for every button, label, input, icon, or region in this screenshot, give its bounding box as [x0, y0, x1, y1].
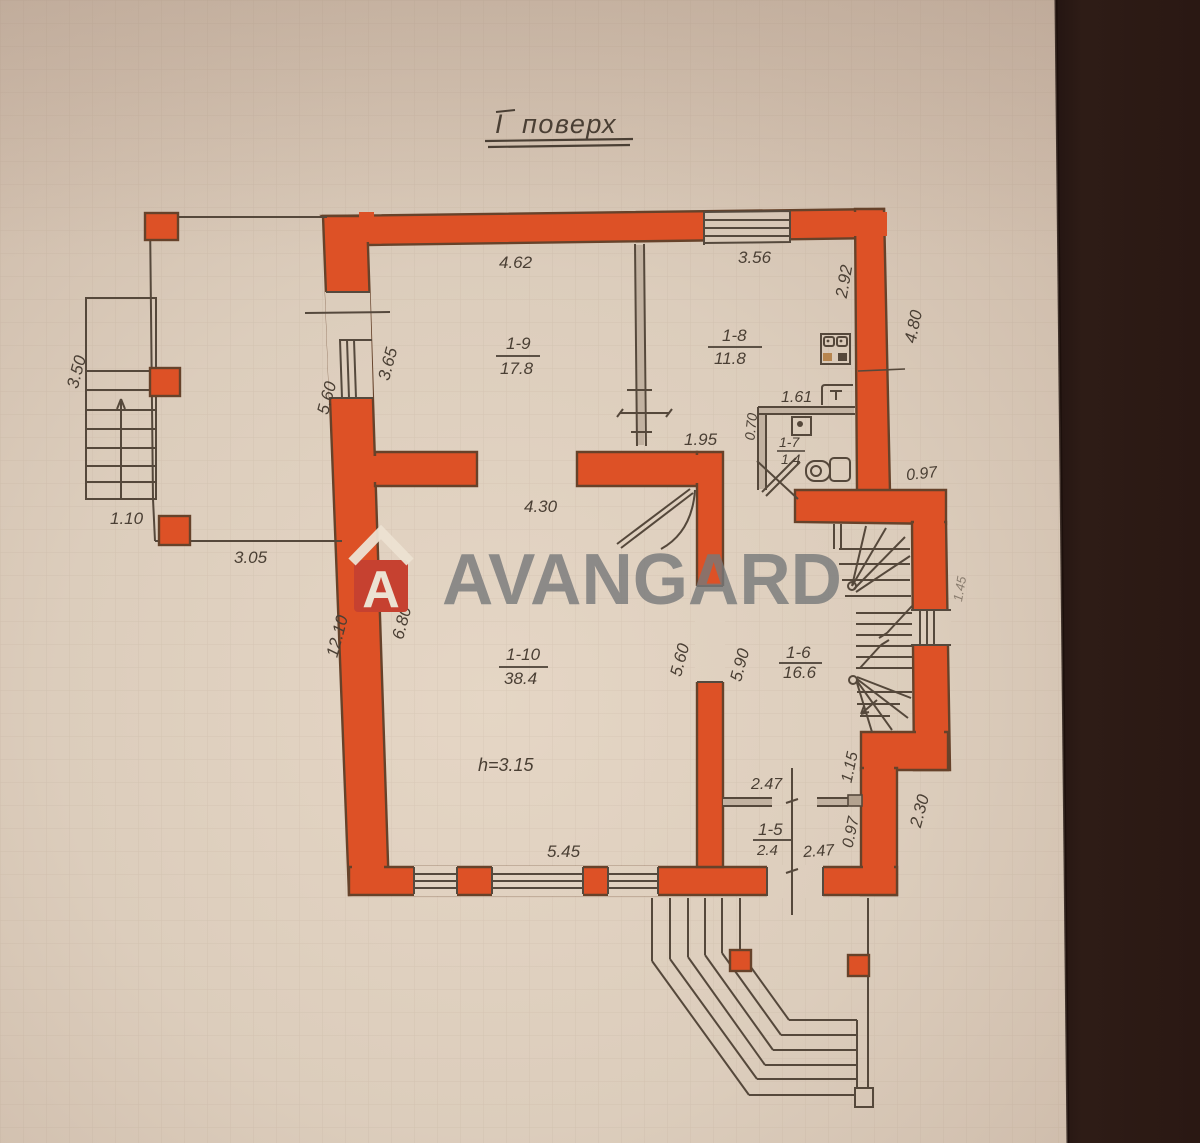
svg-text:4.30: 4.30 — [524, 497, 558, 516]
svg-text:4.62: 4.62 — [499, 253, 533, 272]
svg-text:1.95: 1.95 — [684, 430, 718, 449]
svg-text:A: A — [362, 561, 400, 619]
svg-text:1-7: 1-7 — [779, 434, 800, 450]
svg-text:AVANGARD: AVANGARD — [442, 540, 842, 620]
svg-text:17.8: 17.8 — [500, 359, 534, 378]
svg-text:3.56: 3.56 — [738, 248, 772, 267]
svg-text:0.70: 0.70 — [741, 412, 760, 441]
svg-text:1-10: 1-10 — [506, 645, 541, 664]
svg-text:1.61: 1.61 — [781, 389, 812, 406]
svg-text:38.4: 38.4 — [504, 669, 537, 688]
svg-text:h=3.15: h=3.15 — [478, 755, 535, 775]
svg-text:1-5: 1-5 — [758, 820, 783, 839]
svg-text:1-9: 1-9 — [506, 334, 531, 353]
svg-text:1-8: 1-8 — [722, 326, 747, 345]
svg-text:5.45: 5.45 — [547, 842, 581, 861]
svg-text:1.4: 1.4 — [781, 451, 801, 467]
svg-text:2.47: 2.47 — [750, 776, 783, 793]
svg-text:2.47: 2.47 — [802, 842, 836, 861]
svg-text:3.05: 3.05 — [234, 548, 268, 567]
svg-text:I поверх: I поверх — [495, 109, 617, 139]
svg-text:2.4: 2.4 — [756, 842, 778, 859]
svg-text:16.6: 16.6 — [783, 663, 817, 682]
svg-text:1.10: 1.10 — [110, 509, 144, 528]
svg-text:1-6: 1-6 — [786, 643, 811, 662]
svg-text:0.97: 0.97 — [905, 464, 939, 484]
svg-text:11.8: 11.8 — [714, 349, 746, 368]
